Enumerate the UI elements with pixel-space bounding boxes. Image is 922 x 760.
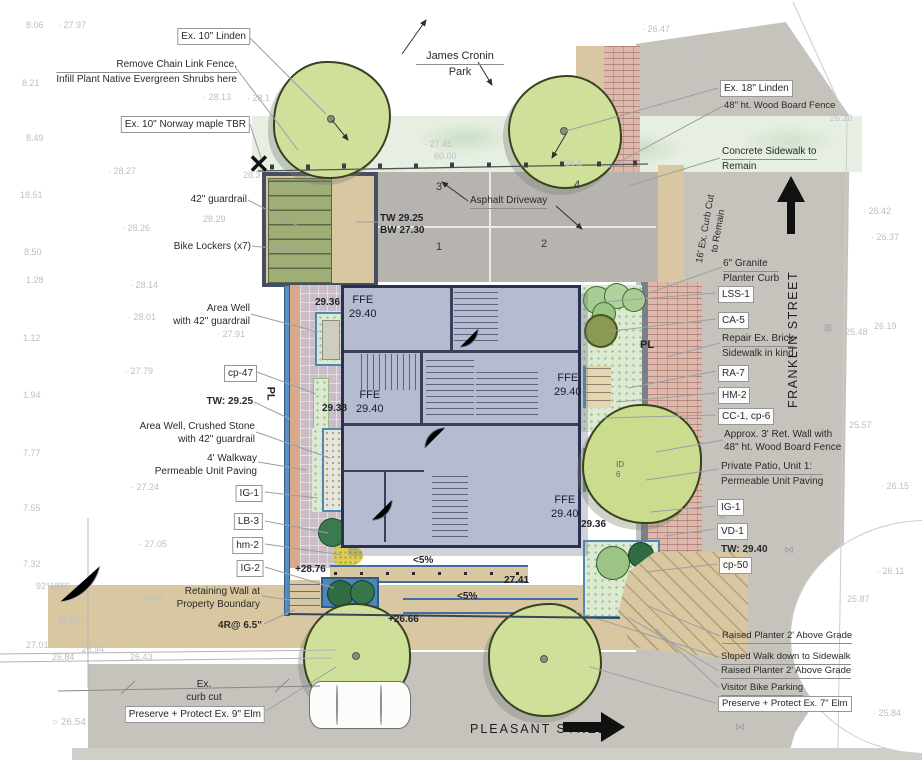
stall-number-2: 2 <box>541 238 547 251</box>
survey-elevation: · 26.42 <box>863 206 891 216</box>
label-hm-2-west: hm-2 <box>232 537 263 554</box>
olive-tree <box>584 314 618 348</box>
survey-elevation: · 27.24 <box>131 482 159 492</box>
label-ig-1-west: IG-1 <box>236 485 263 502</box>
label-raised-planter-1: Raised Planter 2' Above Grade <box>722 630 852 644</box>
survey-elevation: · 28.13 <box>203 92 231 102</box>
label-bike-lockers: Bike Lockers (x7) <box>174 240 251 253</box>
survey-grate-icon: ⊞ <box>824 323 832 334</box>
label-ra-7: RA-7 <box>718 365 749 382</box>
slope-annotation: <5% <box>413 555 433 567</box>
ffe-label-unit-nw: FFE29.40 <box>349 294 377 322</box>
ffe-label-unit-w: FFE29.40 <box>356 389 384 417</box>
label-retaining-wall: Retaining Wall at Property Boundary <box>177 585 260 611</box>
area-well-1-grate <box>322 320 340 360</box>
label-ex18-linden: Ex. 18" Linden <box>720 80 793 97</box>
interior-wall <box>420 350 423 423</box>
survey-elevation: · 26.37 <box>871 232 899 242</box>
spot-elevation: 29.38 <box>322 403 347 415</box>
car-rear-window <box>380 685 382 725</box>
tree-se-canopy <box>582 404 702 524</box>
spot-elevation: +26.66 <box>388 614 419 626</box>
bike-lockers-rack <box>268 178 332 283</box>
label-vd-1: VD-1 <box>717 523 748 540</box>
interior-wall <box>384 470 386 542</box>
stair-run <box>454 291 498 346</box>
survey-elevation: · 26.47 <box>642 24 670 34</box>
tree-removal-x-icon: ✕ <box>248 149 270 180</box>
interior-wall <box>344 423 578 426</box>
water-valve-icon: ⋈ <box>735 722 745 733</box>
survey-elevation: 26.19 <box>874 321 897 331</box>
survey-elevation: 25.57 <box>849 420 872 430</box>
survey-elevation: · 27.97 <box>58 20 86 30</box>
survey-elevation: · 27.91 <box>217 329 245 339</box>
label-hm-2-east: HM-2 <box>718 387 750 404</box>
stair-run <box>426 356 474 420</box>
car-windshield <box>336 685 338 725</box>
label-sloped-walk: Sloped Walk down to Sidewalk <box>721 651 851 665</box>
label-ex-curb-cut: Ex. curb cut <box>168 678 240 704</box>
street-band <box>72 748 922 760</box>
survey-elevation: 8.50 <box>24 247 42 257</box>
survey-elevation: · 28.27 <box>108 166 136 176</box>
label-ca-5: CA-5 <box>718 312 749 329</box>
spot-elevation: 27.41 <box>504 575 529 587</box>
west-salmon-strip <box>290 285 300 568</box>
stall-number-3: 3 <box>436 181 442 194</box>
label-area-well-1: Area Well with 42" guardrail <box>173 302 250 328</box>
east-stoop-1 <box>583 366 611 408</box>
benchmark-circle: ○ 26.54 <box>52 717 86 728</box>
label-norway-maple: Ex. 10" Norway maple TBR <box>121 116 250 133</box>
label-risers: 4R@ 6.5" <box>218 619 262 632</box>
spot-elevation: 29.36 <box>315 297 340 309</box>
site-plan-canvas: FFE29.40 FFE29.40 FFE29.40 FFE29.40 <box>0 0 922 760</box>
label-ig-2: IG-2 <box>237 560 264 577</box>
survey-elevation: 8.06 <box>26 20 44 30</box>
survey-elevation: 7.77 <box>23 448 41 458</box>
label-tw-2940: TW: 29.40 <box>721 543 768 556</box>
survey-elevation: · 28.26 <box>122 223 150 233</box>
label-cc-1-cp-6: CC-1, cp-6 <box>718 408 774 425</box>
label-visitor-bike: Visitor Bike Parking <box>721 682 803 696</box>
slope-annotation: <5% <box>457 591 477 603</box>
se-shrub-1 <box>596 546 630 580</box>
tree-trunk <box>560 127 568 135</box>
label-area-well-2: Area Well, Crushed Stone with 42" guardr… <box>140 420 255 446</box>
label-tw-2925: TW: 29.25 <box>207 395 254 408</box>
label-tw-bw: TW 29.25 BW 27.30 <box>380 213 424 237</box>
water-valve-icon: ⋈ <box>719 513 726 521</box>
survey-elevation: 7.32 <box>23 559 41 569</box>
yellow-groundcover <box>333 545 363 566</box>
label-repair-brick: Repair Ex. Brick Sidewalk in kind <box>722 332 794 360</box>
spot-elevation: 29.36 <box>581 519 606 531</box>
patio-id-tag: ID 6 <box>616 460 624 479</box>
east-shrub-3 <box>622 288 646 312</box>
tree-trunk <box>327 115 335 123</box>
stall-number-1: 1 <box>436 241 442 254</box>
ffe-label-unit-e: FFE29.40 <box>554 372 582 400</box>
parked-car <box>309 681 411 729</box>
interior-wall <box>450 288 453 350</box>
survey-elevation: 1.94 <box>23 390 41 400</box>
planter-shrub-2 <box>350 580 375 605</box>
survey-elevation: 28.29 <box>203 214 226 224</box>
survey-elevation: · 28.14 <box>130 280 158 290</box>
label-raised-planter-2: Raised Planter 2' Above Grade <box>721 665 851 679</box>
north-arrow-icon <box>777 176 805 234</box>
label-lss-1: LSS-1 <box>718 286 754 303</box>
label-ex10-linden: Ex. 10" Linden <box>177 28 250 45</box>
survey-elevation: · 28.1 <box>247 93 270 103</box>
label-asphalt-driveway: Asphalt Driveway <box>470 194 547 209</box>
label-42-guardrail: 42" guardrail <box>191 193 247 206</box>
ffe-label-unit-se: FFE29.40 <box>551 494 579 522</box>
property-line-tag-west: PL <box>263 387 276 401</box>
label-preserve-9-elm: Preserve + Protect Ex. 9" Elm <box>125 706 265 723</box>
interior-wall <box>344 350 578 353</box>
survey-elevation: 25.48 <box>845 327 868 337</box>
survey-elevation: 7.55 <box>23 503 41 513</box>
survey-elevation: · 28.01 <box>128 312 156 322</box>
label-4ft-walkway: 4' Walkway Permeable Unit Paving <box>155 452 257 478</box>
road-strip <box>0 648 336 664</box>
survey-elevation: 1.12 <box>23 333 41 343</box>
building-footprint <box>341 285 581 548</box>
label-cp-50: cp-50 <box>719 557 752 574</box>
label-wood-fence: 48" ht. Wood Board Fence <box>724 100 835 112</box>
walkway-dots <box>334 572 524 575</box>
spot-elevation: +28.76 <box>295 564 326 576</box>
survey-elevation: 8.21 <box>22 78 40 88</box>
label-private-patio: Private Patio, Unit 1: Permeable Unit Pa… <box>721 460 823 488</box>
stair-run <box>356 354 418 390</box>
property-line-tag-east: PL <box>640 339 654 352</box>
label-concrete-sidewalk: Concrete Sidewalk to Remain <box>722 145 817 173</box>
survey-elevation: · 27.05 <box>139 539 167 549</box>
label-granite-curb: 6" Granite Planter Curb <box>723 257 779 285</box>
west-planting-sliver <box>312 428 322 512</box>
survey-elevation: 18.51 <box>20 190 43 200</box>
sw-steps <box>287 580 320 612</box>
driveway-east-tan <box>658 165 684 285</box>
survey-elevation: 1.28 <box>26 275 44 285</box>
label-cp-47: cp-47 <box>224 365 257 382</box>
right-arrow-icon <box>563 712 625 742</box>
label-lb-3: LB-3 <box>234 513 263 530</box>
tree-trunk <box>540 655 548 663</box>
tree-trunk <box>352 652 360 660</box>
label-ret-wall: Approx. 3' Ret. Wall with 48" ht. Wood B… <box>724 428 841 454</box>
survey-elevation: · 27.79 <box>125 366 153 376</box>
stair-run <box>432 474 468 542</box>
stair-run <box>476 368 538 420</box>
survey-elevation: 8.49 <box>26 133 44 143</box>
label-remove-fence: Remove Chain Link Fence, Infill Plant Na… <box>56 58 237 86</box>
label-james-cronin-park: James Cronin Park <box>416 49 504 80</box>
label-preserve-7-elm: Preserve + Protect Ex. 7" Elm <box>718 696 852 712</box>
survey-elevation: · 26.15 <box>881 481 909 491</box>
stall-number-4: 4 <box>574 179 580 192</box>
water-valve-icon: ⋈ <box>784 545 794 556</box>
